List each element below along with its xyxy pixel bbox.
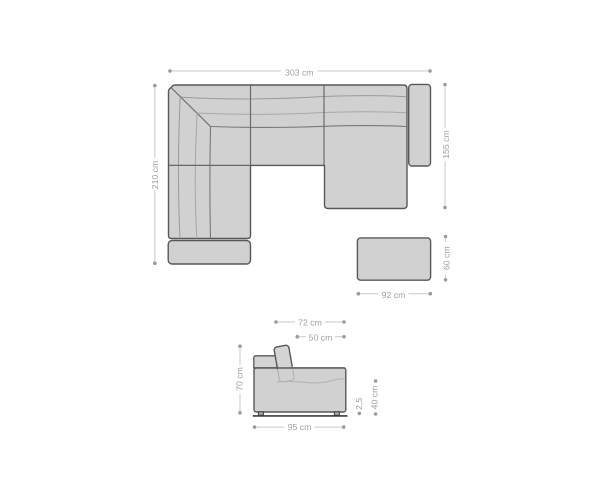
- svg-text:72 cm: 72 cm: [298, 318, 322, 328]
- svg-text:2,5: 2,5: [354, 398, 364, 410]
- svg-text:210 cm: 210 cm: [150, 161, 160, 190]
- svg-text:95 cm: 95 cm: [288, 422, 312, 432]
- svg-text:70 cm: 70 cm: [234, 367, 244, 391]
- svg-text:155 cm: 155 cm: [441, 130, 451, 159]
- svg-text:92 cm: 92 cm: [382, 290, 406, 300]
- svg-text:303 cm: 303 cm: [285, 67, 314, 77]
- svg-text:40 cm: 40 cm: [370, 386, 380, 410]
- svg-text:60 cm: 60 cm: [442, 246, 452, 270]
- svg-text:50 cm: 50 cm: [309, 332, 333, 342]
